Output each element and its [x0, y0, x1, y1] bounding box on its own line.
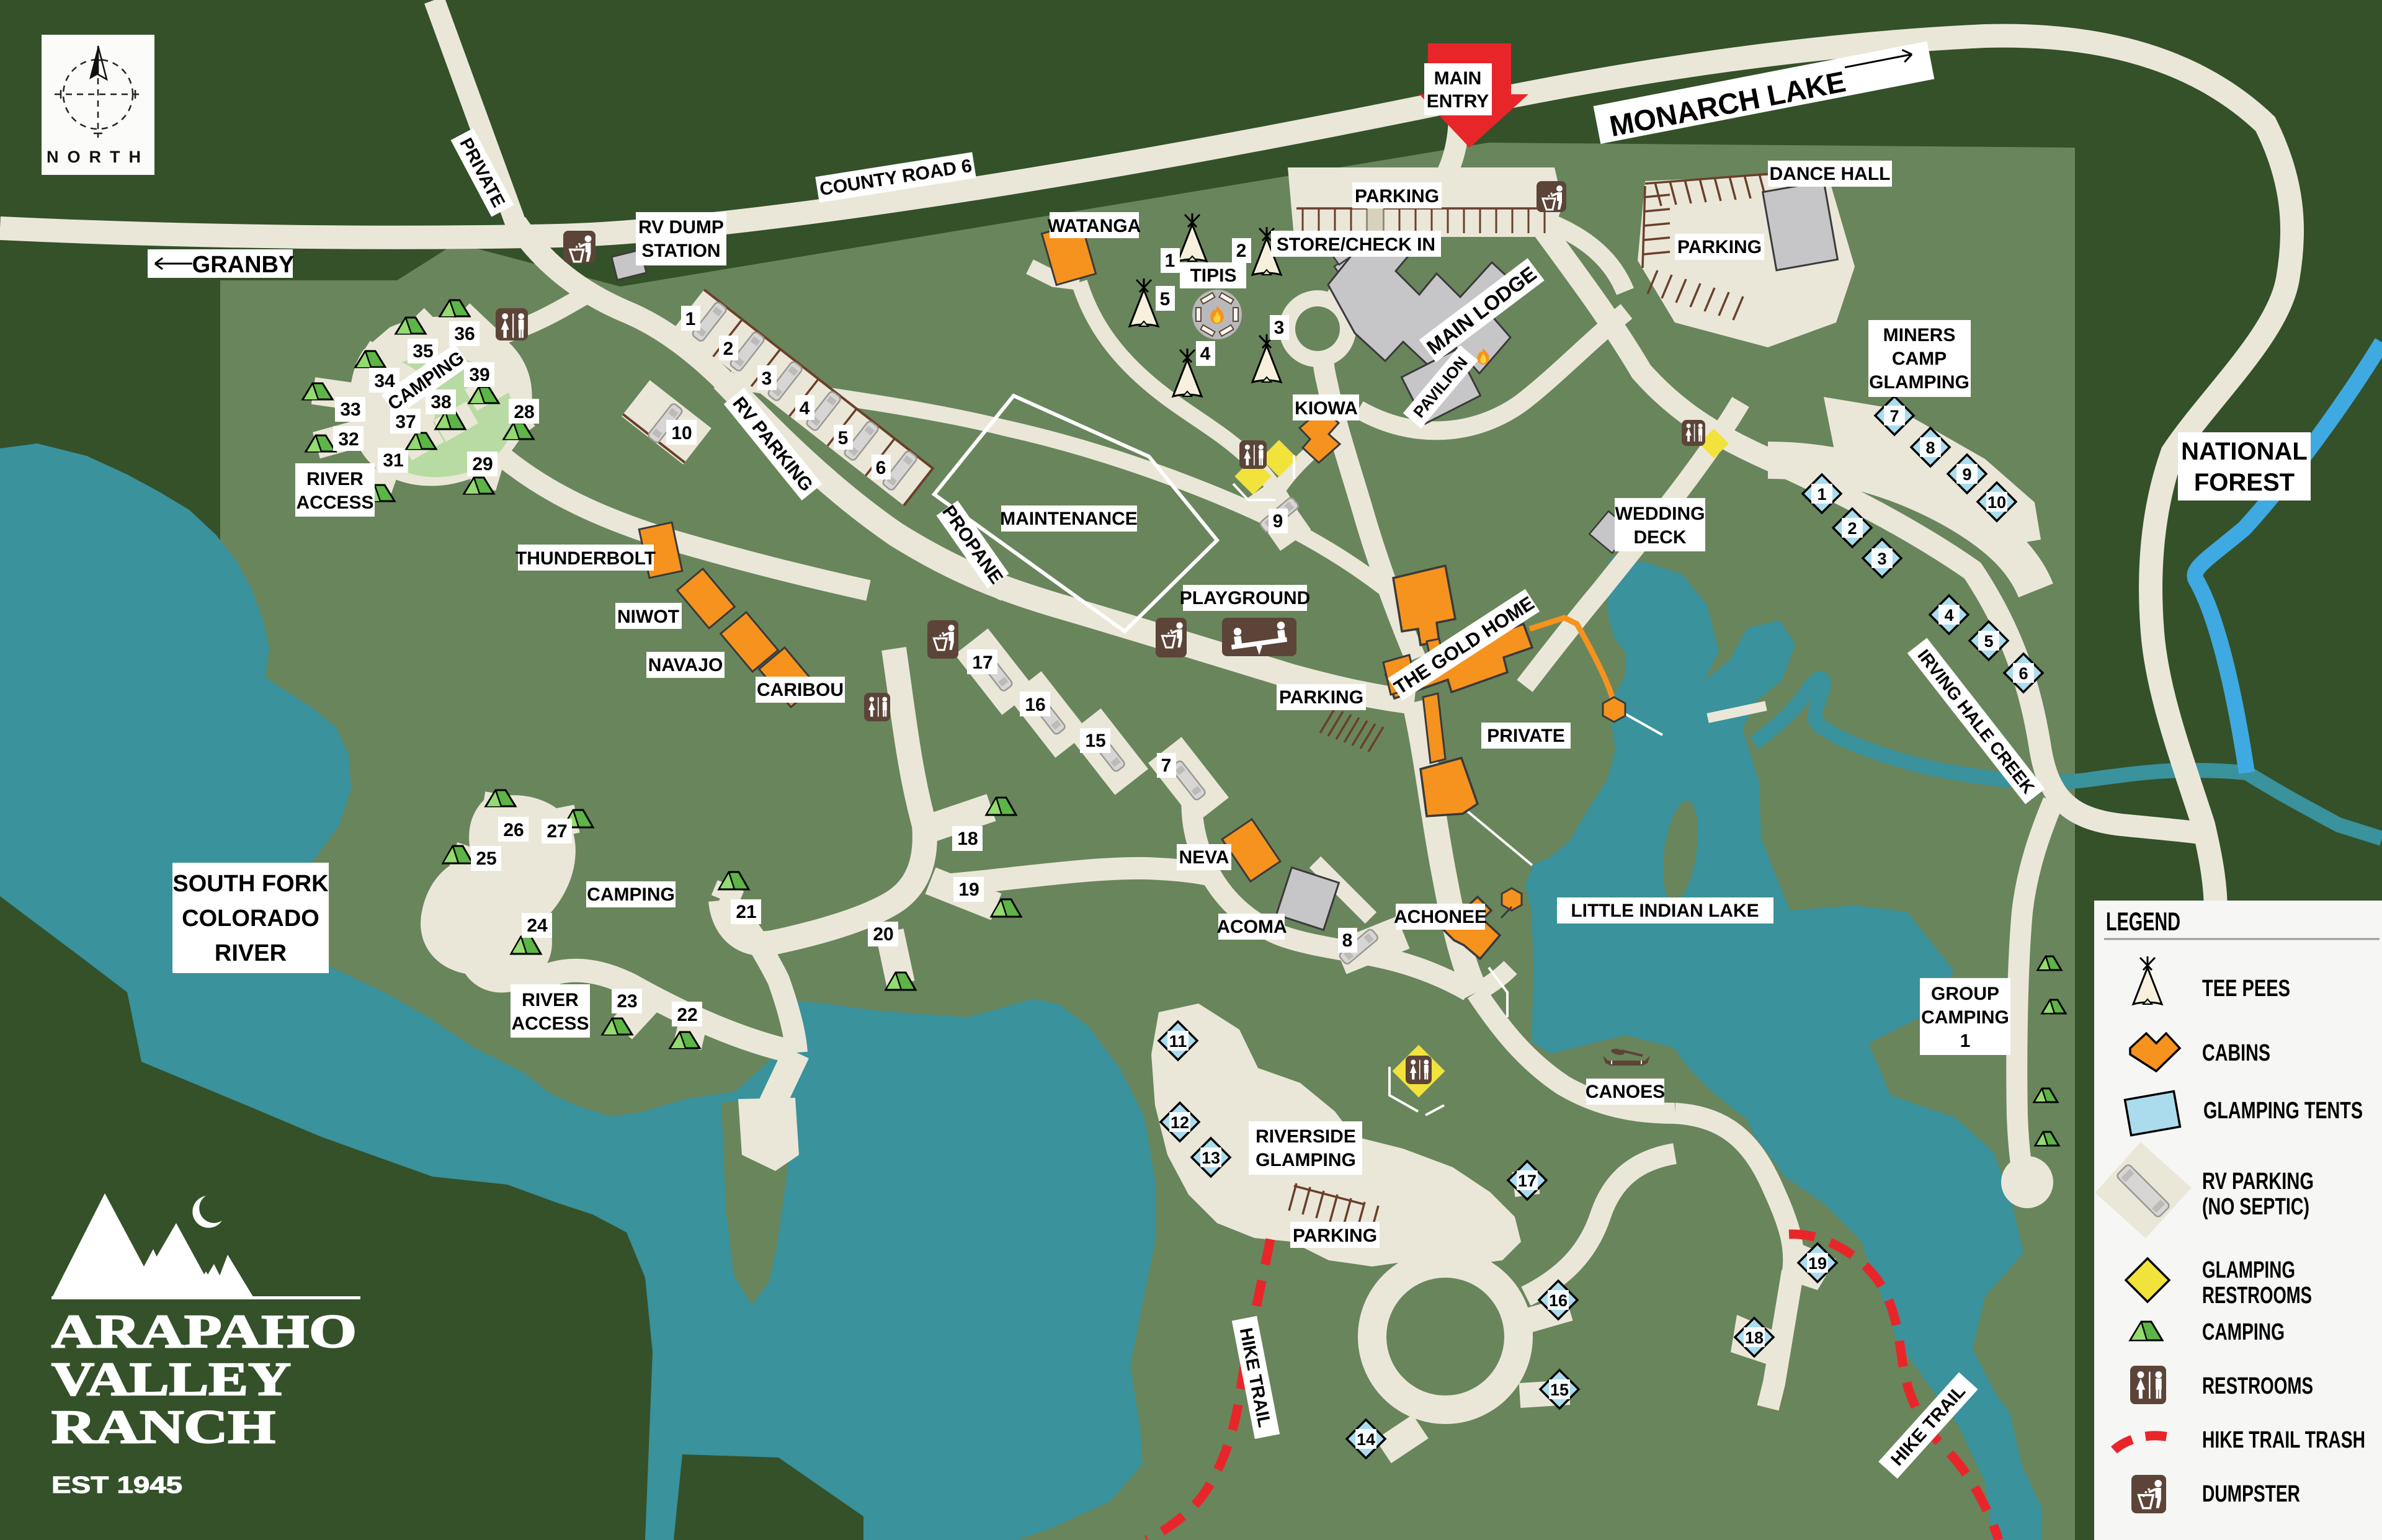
svg-text:15: 15	[1550, 1381, 1569, 1399]
svg-text:RANCH: RANCH	[51, 1401, 275, 1453]
svg-text:39: 39	[469, 365, 489, 385]
svg-text:HIKE TRAIL TRASH: HIKE TRAIL TRASH	[2202, 1427, 2365, 1453]
svg-text:29: 29	[472, 454, 493, 474]
svg-text:PARKING: PARKING	[1293, 1226, 1377, 1246]
svg-text:2: 2	[723, 339, 734, 359]
svg-text:12: 12	[1171, 1113, 1189, 1132]
svg-text:4: 4	[1944, 606, 1953, 625]
svg-text:GLAMPING: GLAMPING	[2202, 1257, 2295, 1283]
svg-text:LITTLE INDIAN LAKE: LITTLE INDIAN LAKE	[1571, 901, 1759, 921]
svg-text:10: 10	[671, 423, 692, 443]
svg-text:TIPIS: TIPIS	[1190, 265, 1236, 286]
svg-text:GLAMPING: GLAMPING	[1256, 1150, 1356, 1170]
svg-text:2: 2	[1236, 241, 1247, 261]
svg-text:24: 24	[527, 915, 548, 936]
svg-text:2: 2	[1847, 519, 1857, 538]
svg-text:(NO SEPTIC): (NO SEPTIC)	[2202, 1194, 2309, 1220]
svg-text:28: 28	[514, 402, 534, 422]
svg-text:6: 6	[876, 458, 886, 478]
svg-text:STATION: STATION	[641, 241, 720, 261]
svg-text:NIWOT: NIWOT	[617, 607, 679, 627]
svg-text:PARKING: PARKING	[1279, 687, 1363, 708]
svg-text:19: 19	[958, 879, 979, 900]
svg-text:18: 18	[957, 829, 978, 849]
svg-text:RIVER: RIVER	[306, 469, 364, 489]
svg-text:GLAMPING: GLAMPING	[1869, 372, 1969, 393]
svg-text:WEDDING: WEDDING	[1615, 504, 1705, 524]
svg-text:17: 17	[1518, 1172, 1537, 1190]
svg-text:FOREST: FOREST	[2194, 469, 2295, 496]
svg-text:17: 17	[972, 652, 993, 673]
svg-text:NATIONAL: NATIONAL	[2181, 438, 2308, 465]
svg-text:RIVER: RIVER	[215, 940, 287, 966]
svg-text:DANCE HALL: DANCE HALL	[1770, 164, 1891, 184]
svg-text:32: 32	[338, 429, 359, 450]
svg-text:PARKING: PARKING	[1677, 237, 1762, 257]
svg-text:MAIN: MAIN	[1434, 68, 1482, 89]
svg-text:14: 14	[1357, 1430, 1375, 1449]
svg-text:RESTROOMS: RESTROOMS	[2202, 1283, 2312, 1309]
svg-text:RIVER: RIVER	[522, 990, 579, 1010]
svg-text:5: 5	[838, 428, 849, 448]
svg-text:5: 5	[1160, 289, 1171, 309]
svg-text:ENTRY: ENTRY	[1427, 91, 1489, 112]
svg-text:20: 20	[873, 924, 893, 945]
svg-text:7: 7	[1889, 407, 1899, 425]
svg-text:PLAYGROUND: PLAYGROUND	[1180, 588, 1311, 608]
svg-text:MAINTENANCE: MAINTENANCE	[1000, 509, 1138, 529]
svg-text:THUNDERBOLT: THUNDERBOLT	[515, 548, 656, 569]
svg-text:WATANGA: WATANGA	[1048, 216, 1141, 236]
svg-text:4: 4	[1200, 344, 1211, 364]
svg-text:1: 1	[1165, 251, 1175, 271]
svg-text:SOUTH FORK: SOUTH FORK	[172, 871, 329, 897]
svg-text:1: 1	[1817, 485, 1826, 504]
svg-text:GLAMPING TENTS: GLAMPING TENTS	[2203, 1098, 2363, 1124]
svg-text:ACCESS: ACCESS	[296, 492, 373, 513]
svg-text:ACHONEE: ACHONEE	[1394, 907, 1487, 927]
svg-text:15: 15	[1085, 731, 1105, 751]
svg-text:26: 26	[503, 820, 524, 840]
svg-text:CARIBOU: CARIBOU	[757, 680, 844, 700]
svg-text:NAVAJO: NAVAJO	[648, 655, 723, 675]
svg-text:GRANBY: GRANBY	[192, 252, 295, 278]
svg-text:4: 4	[800, 398, 810, 419]
svg-text:23: 23	[617, 991, 637, 1012]
svg-text:RESTROOMS: RESTROOMS	[2202, 1373, 2313, 1399]
svg-text:1: 1	[1960, 1031, 1971, 1051]
svg-text:6: 6	[2018, 664, 2028, 683]
svg-text:CAMP: CAMP	[1892, 349, 1947, 369]
svg-text:CAMPING: CAMPING	[1921, 1007, 2009, 1028]
svg-text:3: 3	[1877, 550, 1886, 568]
svg-text:31: 31	[383, 450, 403, 471]
svg-text:NORTH: NORTH	[47, 148, 149, 166]
svg-text:ACOMA: ACOMA	[1216, 917, 1287, 937]
svg-text:EST 1945: EST 1945	[51, 1472, 182, 1498]
svg-text:DECK: DECK	[1633, 527, 1686, 548]
svg-text:21: 21	[736, 902, 756, 922]
svg-text:DUMPSTER: DUMPSTER	[2202, 1481, 2300, 1507]
svg-text:COLORADO: COLORADO	[182, 906, 319, 932]
svg-text:ARAPAHO: ARAPAHO	[51, 1306, 357, 1358]
svg-text:NEVA: NEVA	[1179, 847, 1229, 868]
svg-text:3: 3	[1274, 318, 1285, 338]
svg-text:9: 9	[1962, 465, 1971, 484]
svg-text:1: 1	[685, 309, 696, 329]
svg-text:CABINS: CABINS	[2202, 1040, 2270, 1066]
svg-text:CAMPING: CAMPING	[2202, 1319, 2285, 1345]
svg-text:RV DUMP: RV DUMP	[638, 217, 724, 238]
svg-text:CAMPING: CAMPING	[587, 884, 675, 905]
svg-text:35: 35	[413, 341, 433, 362]
svg-text:STORE/CHECK IN: STORE/CHECK IN	[1277, 234, 1435, 255]
svg-text:18: 18	[1745, 1329, 1764, 1347]
svg-text:MINERS: MINERS	[1883, 325, 1956, 345]
svg-text:5: 5	[1984, 632, 1993, 651]
svg-text:11: 11	[1169, 1032, 1187, 1051]
svg-text:8: 8	[1925, 438, 1935, 457]
svg-text:TEE PEES: TEE PEES	[2202, 976, 2290, 1002]
svg-text:7: 7	[1161, 755, 1172, 776]
svg-text:GROUP: GROUP	[1931, 984, 1999, 1004]
svg-text:RV PARKING: RV PARKING	[2202, 1168, 2314, 1195]
svg-text:8: 8	[1342, 930, 1353, 951]
svg-text:10: 10	[1987, 493, 2006, 512]
svg-text:RIVERSIDE: RIVERSIDE	[1256, 1126, 1356, 1147]
svg-text:CANOES: CANOES	[1586, 1082, 1665, 1102]
svg-text:KIOWA: KIOWA	[1295, 398, 1358, 419]
svg-text:13: 13	[1202, 1149, 1220, 1167]
svg-text:LEGEND: LEGEND	[2106, 907, 2180, 936]
svg-text:25: 25	[476, 848, 496, 869]
svg-text:27: 27	[546, 821, 567, 842]
svg-text:3: 3	[762, 368, 772, 389]
svg-text:36: 36	[454, 324, 475, 344]
svg-text:PRIVATE: PRIVATE	[1487, 726, 1565, 746]
svg-text:33: 33	[340, 399, 360, 420]
svg-text:22: 22	[677, 1005, 697, 1025]
svg-text:19: 19	[1808, 1254, 1827, 1273]
svg-text:16: 16	[1549, 1291, 1568, 1310]
svg-text:38: 38	[430, 392, 451, 412]
svg-text:16: 16	[1025, 695, 1045, 715]
svg-text:9: 9	[1273, 511, 1283, 532]
svg-text:ACCESS: ACCESS	[511, 1013, 589, 1034]
svg-text:PARKING: PARKING	[1355, 186, 1439, 207]
svg-text:VALLEY: VALLEY	[51, 1353, 291, 1405]
